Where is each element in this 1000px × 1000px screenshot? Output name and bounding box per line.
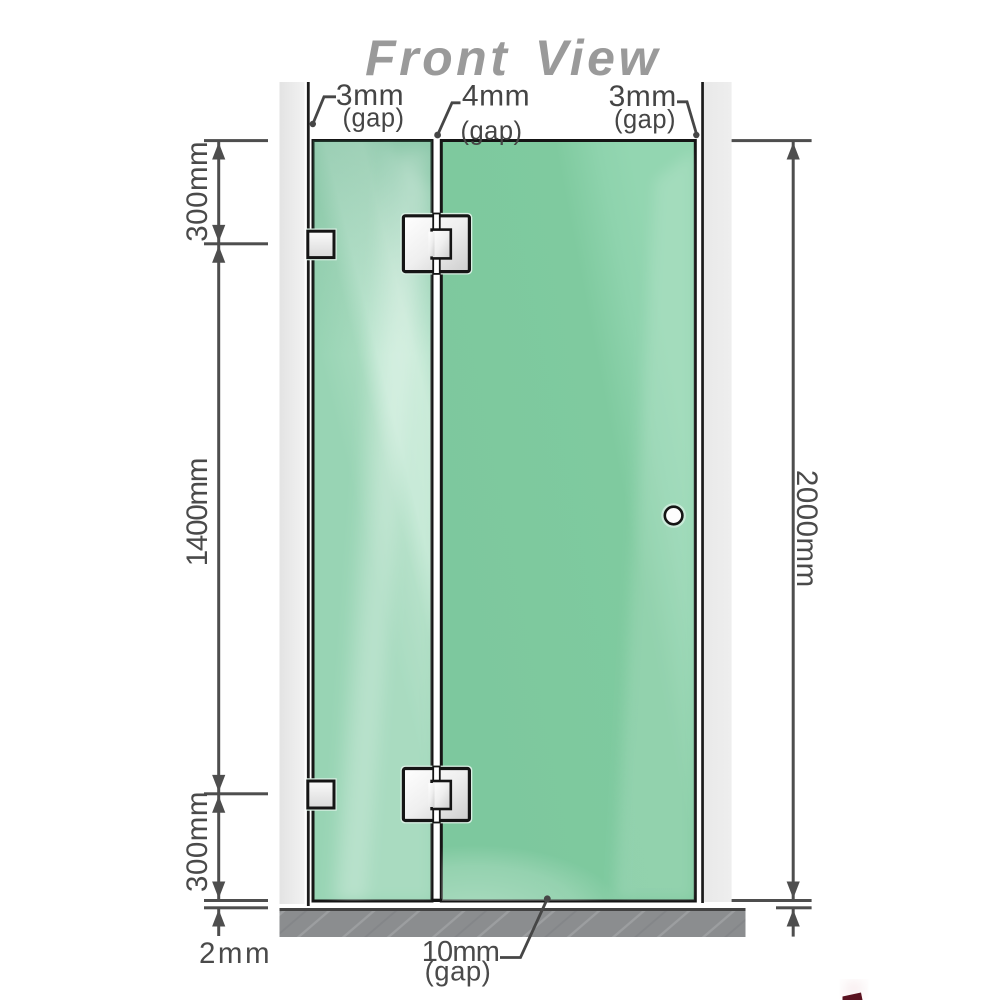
svg-text:(gap): (gap) bbox=[425, 956, 492, 987]
svg-text:300mm: 300mm bbox=[181, 141, 214, 242]
svg-text:(gap): (gap) bbox=[614, 106, 676, 134]
svg-text:2000mm: 2000mm bbox=[790, 470, 823, 588]
svg-text:1400mm: 1400mm bbox=[181, 459, 214, 567]
svg-text:2mm: 2mm bbox=[199, 937, 272, 970]
svg-text:Front View: Front View bbox=[365, 30, 661, 86]
svg-text:300mm: 300mm bbox=[181, 791, 214, 892]
svg-text:4mm: 4mm bbox=[462, 80, 530, 113]
svg-text:(gap): (gap) bbox=[342, 104, 404, 132]
svg-text:(gap): (gap) bbox=[460, 118, 522, 146]
